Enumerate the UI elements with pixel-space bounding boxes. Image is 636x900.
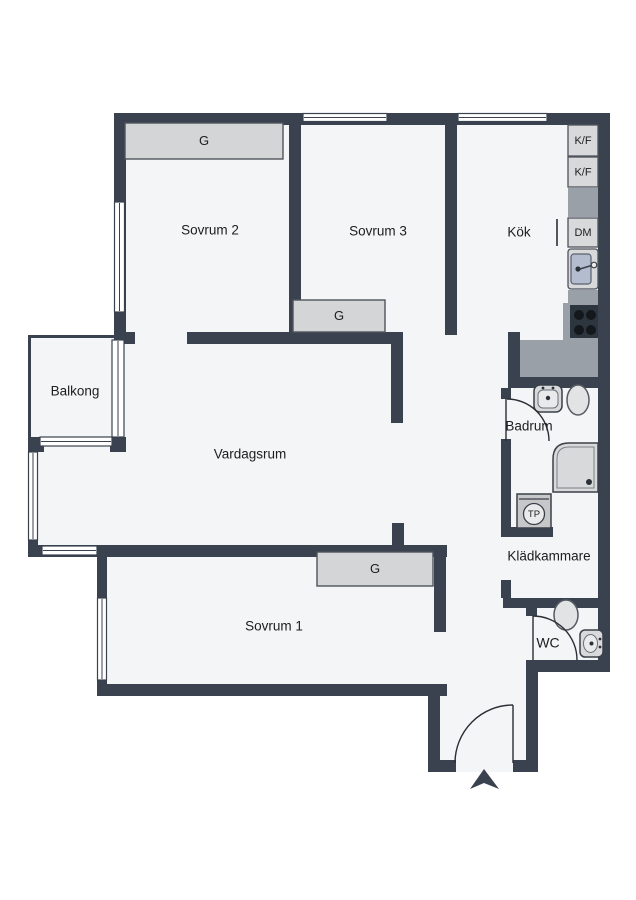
wall-segment — [508, 332, 520, 382]
room-label-sovrum-2: Sovrum 2 — [181, 223, 239, 238]
balcony-railing — [28, 335, 31, 445]
room-label-badrum: Badrum — [505, 419, 552, 434]
wc-sink-tap — [599, 646, 602, 649]
stove-burner — [586, 310, 596, 320]
room-label-sovrum-3: Sovrum 3 — [349, 224, 407, 239]
bathroom-sink-tap — [542, 387, 545, 390]
washer-tp-label: TP — [528, 509, 540, 520]
room-label-balkong: Balkong — [51, 384, 100, 399]
wall-segment — [289, 113, 301, 332]
room-label-kok: Kök — [507, 225, 531, 240]
kitchen-counter — [520, 340, 598, 377]
balcony-railing — [28, 335, 118, 338]
wall-segment — [391, 340, 403, 423]
room-label-vardagsrum: Vardagsrum — [214, 447, 287, 462]
stove-burner — [574, 325, 584, 335]
kitchen-sink-drain — [575, 266, 580, 271]
floor-area — [28, 445, 118, 557]
bathroom-sink-drain — [546, 396, 550, 400]
wall-segment — [526, 660, 610, 672]
wall-segment — [445, 113, 457, 335]
kitchen-faucet-knob — [591, 262, 597, 268]
wall-segment — [187, 332, 403, 344]
wardrobe-label: G — [370, 561, 380, 576]
wall-segment — [503, 598, 600, 608]
wall-segment — [501, 439, 511, 537]
room-label-wc: WC — [536, 635, 559, 651]
wall-segment — [501, 388, 511, 399]
stove-burner — [574, 310, 584, 320]
fridge-freezer-unit-label: K/F — [574, 166, 591, 178]
kitchen-counter — [568, 290, 598, 305]
wall-segment — [526, 660, 538, 772]
wall-segment — [501, 580, 511, 598]
floor-plan: GGGK/FK/FDMTPSovrum 2Sovrum 3KökBalkongV… — [0, 0, 636, 900]
fridge-freezer-unit-label: K/F — [574, 135, 591, 147]
floor-plan-canvas: GGGK/FK/FDMTPSovrum 2Sovrum 3KökBalkongV… — [0, 0, 636, 900]
wall-segment — [526, 598, 537, 616]
room-label-kladkammare: Klädkammare — [507, 549, 590, 564]
toilet — [554, 600, 578, 630]
wc-sink-tap — [599, 638, 602, 641]
kitchen-counter — [568, 188, 598, 217]
dishwasher-unit-label: DM — [574, 227, 591, 239]
shower-drain — [586, 479, 592, 485]
room-label-sovrum-1: Sovrum 1 — [245, 619, 303, 634]
wall-segment — [97, 684, 447, 696]
stove-burner — [586, 325, 596, 335]
bathroom-sink-tap — [552, 387, 555, 390]
wc-sink-drain — [590, 642, 594, 646]
wardrobe-label: G — [334, 308, 344, 323]
wall-segment — [434, 557, 446, 632]
toilet — [567, 385, 589, 415]
wardrobe-label: G — [199, 133, 209, 148]
wall-segment — [513, 760, 538, 772]
wall-segment — [428, 684, 440, 772]
wall-segment — [598, 113, 610, 672]
